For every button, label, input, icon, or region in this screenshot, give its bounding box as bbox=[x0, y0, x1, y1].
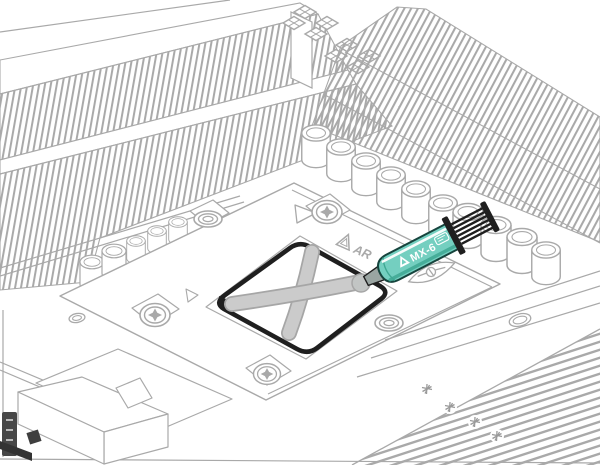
standoff-hole bbox=[68, 312, 85, 324]
dimm-latch-icon bbox=[443, 400, 457, 414]
motherboard-illustration: AR bbox=[0, 0, 600, 465]
dimm-latch-icon bbox=[468, 415, 482, 429]
bottom-left-connectors bbox=[0, 349, 232, 464]
washer-icon bbox=[194, 211, 222, 227]
phillips-screw-icon bbox=[312, 201, 342, 224]
illustration-frame: AR bbox=[0, 0, 600, 465]
dimm-latch-icon bbox=[420, 382, 434, 396]
phillips-screw-icon bbox=[140, 304, 170, 327]
dimm-latch-icon bbox=[490, 429, 504, 443]
phillips-screw-icon bbox=[254, 364, 281, 385]
washer-icon bbox=[375, 315, 403, 331]
